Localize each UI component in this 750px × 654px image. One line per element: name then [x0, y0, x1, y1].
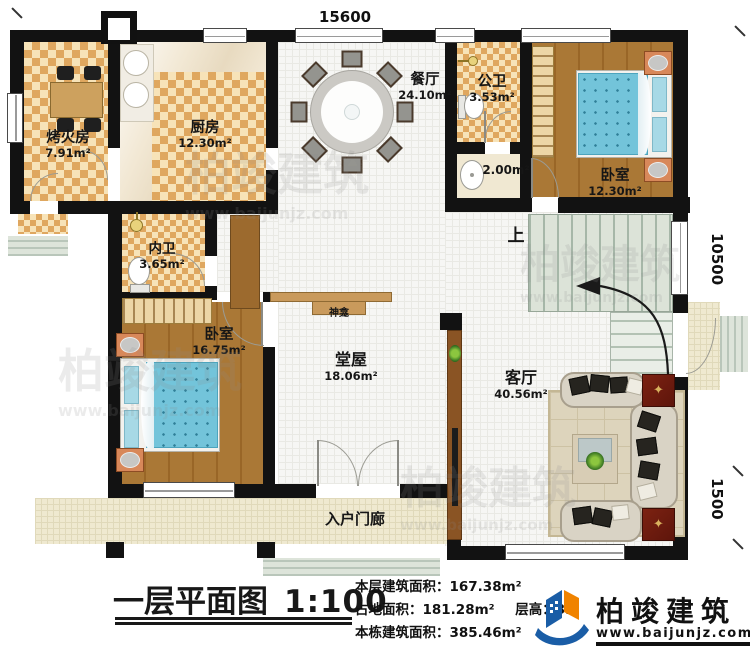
- room-label-dining: 餐厅 24.10m²: [383, 72, 467, 103]
- kao-table: [50, 82, 103, 118]
- gongwei-door-leaf: [484, 111, 486, 143]
- plan-title: 一层平面图: [113, 576, 268, 621]
- wall-neiwei-right-a: [205, 214, 217, 256]
- dimension-right-lower: 1500: [708, 478, 726, 540]
- bedroom-bl-nightstand: [116, 448, 144, 472]
- room-area: 40.56m²: [482, 388, 560, 402]
- room-area: 12.30m²: [165, 137, 245, 151]
- kaohuofang-exit-gap: [30, 201, 58, 214]
- wall-gongwei-bottom-a: [445, 142, 485, 154]
- bedroom-bl-nightstand: [116, 333, 144, 357]
- room-name: 公卫: [460, 74, 524, 91]
- sofa-cushion: [572, 506, 593, 525]
- dimension-right-upper: 10500: [708, 233, 726, 343]
- bedroom-bl-door-leaf: [261, 302, 263, 346]
- room-area: 18.06m²: [312, 370, 390, 384]
- kitchen-door-leaf: [230, 215, 260, 309]
- dimension-tick: [734, 25, 745, 36]
- shrine-cabinet: 神龛: [312, 301, 366, 315]
- wall-bath-left: [445, 42, 457, 212]
- room-name: 卧室: [578, 168, 652, 185]
- room-name: 堂屋: [312, 351, 390, 370]
- window-top-4: [521, 28, 611, 43]
- bedroom-tr-pillow: [652, 77, 667, 112]
- room-area: 16.75m²: [180, 344, 258, 358]
- sofa-cushion: [591, 507, 613, 528]
- tv-screen: [452, 428, 458, 506]
- room-label-keting: 客厅 40.56m²: [482, 369, 560, 401]
- room-label-bedroom-tr: 卧室 12.30m²: [578, 168, 652, 199]
- stair-direction-arrow: [548, 262, 678, 382]
- room-area: 3.65m²: [130, 258, 194, 272]
- room-label-kaohuofang: 烤火房 7.91m²: [28, 130, 108, 161]
- stairs-direction: 上: [504, 226, 528, 246]
- room-area: 3.53m²: [460, 91, 524, 105]
- room-name: 餐厅: [383, 72, 467, 89]
- wall-kitchen-bottom: [108, 201, 278, 214]
- left-steps: [8, 236, 68, 256]
- wall-tv-pillar: [440, 313, 462, 330]
- side-table-top: ✦: [642, 374, 675, 407]
- tangwu-door-leaf-left: [317, 440, 319, 486]
- wall-bedroom-bl-right-b: [263, 347, 275, 484]
- wall-kaohuofang-bottom: [10, 201, 122, 214]
- bedroom-bl-wardrobe: [122, 298, 212, 324]
- bedroom-bl-mattress: [146, 362, 218, 448]
- wall-basin-bottom: [445, 198, 532, 212]
- room-area: 7.91m²: [28, 147, 108, 161]
- room-name: 卧室: [180, 327, 258, 344]
- bedroom-bl-blanket-fold: [141, 362, 154, 448]
- window-bedroom-bl: [143, 482, 235, 498]
- bedroom-tr-nightstand: [644, 51, 672, 75]
- gongwei-faucet: [468, 56, 478, 66]
- tangwu-door-leaf-right: [397, 440, 399, 486]
- dimension-tick: [732, 465, 743, 476]
- plan-title-row: 一层平面图 1:100: [113, 576, 388, 621]
- window-living: [505, 544, 625, 560]
- dimension-tick: [11, 7, 22, 18]
- window-top-1: [203, 28, 247, 43]
- room-label-kitchen: 厨房 12.30m²: [165, 120, 245, 151]
- chimney-inner: [108, 18, 130, 40]
- sofa-cushion: [636, 437, 658, 457]
- floor-plan: 神龛 ✦ ✦ 烤火房 7.91m² 厨房 12.30m² 餐厅 24.10m² …: [0, 0, 750, 654]
- side-table-bottom: ✦: [642, 508, 675, 541]
- dimension-top: 15600: [295, 8, 395, 26]
- shrine-label: 神龛: [329, 308, 349, 319]
- coffee-table-plant: [586, 452, 604, 470]
- dining-table-center: [344, 104, 360, 120]
- sofa-cushion: [611, 504, 629, 521]
- dining-chair: [342, 51, 363, 68]
- room-name: 内卫: [130, 242, 194, 258]
- kitchen-sink-1: [123, 50, 149, 76]
- gongwei-faucet-pipe: [458, 60, 469, 62]
- room-label-neiwei: 内卫 3.65m²: [130, 242, 194, 271]
- room-label-basin: 2.00m²: [478, 163, 534, 177]
- title-underline: [115, 617, 352, 620]
- stat-footprint: 占地面积：181.28m²: [355, 602, 495, 618]
- room-label-porch: 入户门廊: [300, 511, 410, 529]
- wall-kitchen-dining-a: [266, 42, 278, 148]
- kao-chair: [57, 66, 74, 80]
- title-underline: [115, 622, 352, 625]
- kao-chair: [84, 66, 101, 80]
- porch-column-2: [257, 542, 275, 558]
- room-area: 24.10m²: [383, 89, 467, 103]
- room-name: 厨房: [165, 120, 245, 137]
- porch-column-1: [106, 542, 124, 558]
- window-top-3: [435, 28, 475, 43]
- tv-plant: [449, 345, 461, 362]
- brand-url: www.baijunjz.com: [596, 626, 750, 646]
- bedroom-tr-wardrobe: [532, 46, 554, 158]
- room-label-gongwei: 公卫 3.53m²: [460, 74, 524, 105]
- kitchen-sink-2: [123, 82, 149, 108]
- sofa-cushion: [638, 460, 661, 480]
- sofa-cushion: [589, 374, 610, 393]
- bedroom-tr-pillow: [652, 117, 667, 152]
- wall-bedroom-tr-bottom: [558, 197, 690, 213]
- neiwei-sink: [130, 219, 143, 232]
- window-top-2: [295, 28, 383, 43]
- star-icon: ✦: [653, 517, 664, 532]
- room-name: 客厅: [482, 369, 560, 388]
- dining-chair: [397, 102, 414, 123]
- room-label-tangwu: 堂屋 18.06m²: [312, 351, 390, 383]
- dining-chair: [342, 157, 363, 174]
- room-name: 入户门廊: [300, 511, 410, 529]
- room-label-bedroom-bl: 卧室 16.75m²: [180, 327, 258, 358]
- room-name: 烤火房: [28, 130, 108, 147]
- title-block: 一层平面图 1:100 本层建筑面积：167.38m² 占地面积：181.28m…: [0, 572, 750, 654]
- star-icon: ✦: [653, 383, 664, 398]
- dimension-tick: [732, 538, 743, 549]
- room-area: 12.30m²: [578, 185, 652, 199]
- brand-logo-icon: [534, 586, 590, 648]
- dining-chair: [291, 102, 308, 123]
- washbasin-drain: [470, 173, 474, 177]
- wall-kao-kitchen: [108, 42, 120, 148]
- tangwu-door-gap: [316, 484, 400, 498]
- room-area: 2.00m²: [478, 163, 534, 177]
- bedroom-bl-pillow: [124, 410, 139, 448]
- stairs-up-label: 上: [504, 226, 528, 246]
- window-right: [671, 221, 688, 295]
- bedroom-bl-pillow: [124, 366, 139, 404]
- left-landing: [18, 214, 68, 234]
- neiwei-toilet-tank: [130, 284, 150, 293]
- brand-name: 柏竣建筑: [596, 590, 736, 630]
- window-left: [7, 93, 23, 143]
- neiwei-sink-pipe: [136, 212, 138, 220]
